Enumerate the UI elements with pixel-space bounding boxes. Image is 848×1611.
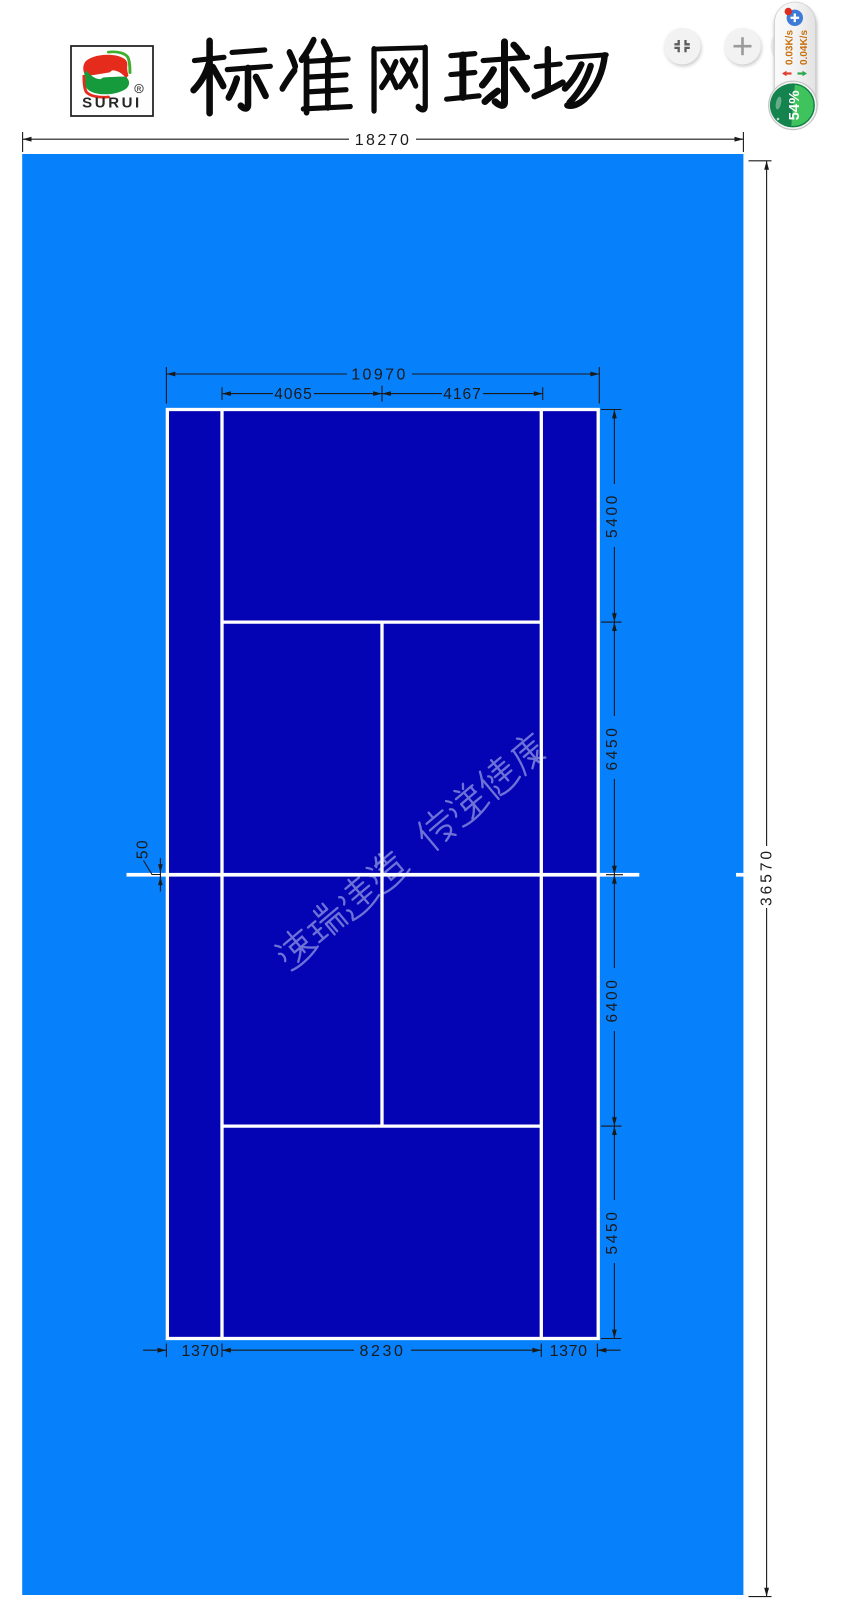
svg-text:6400: 6400 <box>604 978 621 1023</box>
svg-text:18270: 18270 <box>355 132 412 149</box>
svg-text:6450: 6450 <box>604 726 621 771</box>
svg-text:4065: 4065 <box>274 386 312 403</box>
svg-text:50: 50 <box>135 839 152 859</box>
svg-text:54%: 54% <box>786 90 803 120</box>
svg-text:5400: 5400 <box>604 493 621 538</box>
svg-text:10970: 10970 <box>351 366 408 383</box>
svg-text:8230: 8230 <box>360 1343 406 1360</box>
svg-text:4167: 4167 <box>443 386 481 403</box>
svg-text:1370: 1370 <box>550 1343 588 1360</box>
svg-text:SURUI: SURUI <box>82 95 142 112</box>
svg-text:0.04K/s: 0.04K/s <box>799 30 810 65</box>
svg-text:5450: 5450 <box>604 1210 621 1255</box>
svg-text:R: R <box>137 86 142 93</box>
svg-text:1370: 1370 <box>182 1343 220 1360</box>
svg-text:0.03K/s: 0.03K/s <box>785 30 796 65</box>
svg-text:36570: 36570 <box>759 848 776 906</box>
